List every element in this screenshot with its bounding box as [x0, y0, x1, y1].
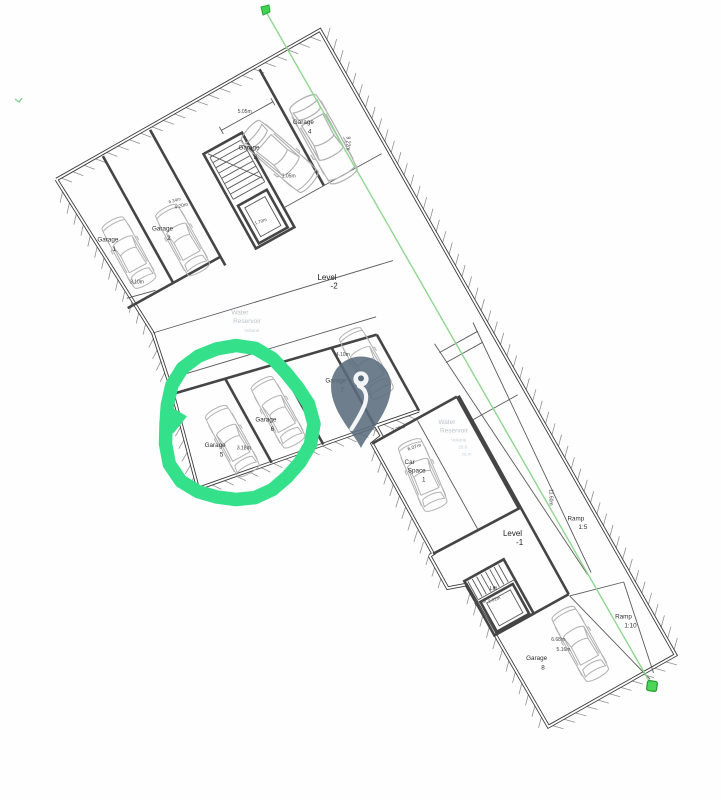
svg-text:Water: Water	[231, 310, 249, 317]
svg-text:4: 4	[308, 128, 312, 135]
svg-text:Level: Level	[317, 273, 336, 282]
svg-text:1: 1	[422, 476, 426, 483]
svg-text:Volume: Volume	[244, 328, 260, 333]
svg-text:6.68m: 6.68m	[551, 637, 565, 643]
svg-text:Water: Water	[438, 419, 456, 426]
svg-text:1.05m: 1.05m	[282, 174, 296, 180]
svg-text:5: 5	[220, 452, 224, 459]
svg-text:Car: Car	[405, 459, 415, 466]
svg-text:Space: Space	[408, 468, 426, 475]
svg-text:Garage: Garage	[152, 226, 174, 233]
svg-text:8: 8	[541, 665, 545, 672]
svg-text:Lift: Lift	[490, 586, 498, 592]
svg-text:Garage: Garage	[97, 236, 119, 243]
svg-text:Volume: Volume	[451, 437, 467, 442]
svg-text:Garage: Garage	[238, 144, 260, 151]
svg-text:11.60m: 11.60m	[547, 489, 553, 505]
svg-text:-1: -1	[516, 538, 524, 547]
svg-text:Reservoir: Reservoir	[233, 318, 262, 325]
svg-text:5.05m: 5.05m	[238, 109, 252, 115]
svg-text:3.18m: 3.18m	[237, 446, 251, 452]
svg-text:Ramp: Ramp	[615, 614, 632, 621]
svg-text:Garage: Garage	[205, 442, 227, 449]
svg-text:2: 2	[167, 235, 171, 242]
svg-text:9.22m: 9.22m	[344, 137, 350, 151]
svg-text:-2: -2	[331, 282, 339, 291]
svg-text:4.10m: 4.10m	[336, 352, 350, 358]
svg-text:Level: Level	[503, 529, 522, 538]
svg-text:Garage: Garage	[293, 119, 315, 126]
svg-text:Garage: Garage	[255, 416, 277, 423]
svg-text:3: 3	[254, 154, 258, 161]
svg-text:1: 1	[113, 246, 117, 253]
svg-text:1:5: 1:5	[579, 524, 588, 531]
svg-text:1:10: 1:10	[624, 622, 637, 629]
svg-text:6: 6	[271, 426, 275, 433]
svg-text:cu.m: cu.m	[462, 451, 472, 456]
svg-text:5.16m: 5.16m	[557, 647, 571, 653]
svg-text:Ramp: Ramp	[568, 516, 585, 523]
svg-text:3.10m: 3.10m	[130, 280, 144, 286]
svg-text:20.6: 20.6	[458, 444, 467, 449]
svg-text:Reservoir: Reservoir	[440, 428, 469, 435]
svg-text:Garage: Garage	[526, 655, 548, 662]
